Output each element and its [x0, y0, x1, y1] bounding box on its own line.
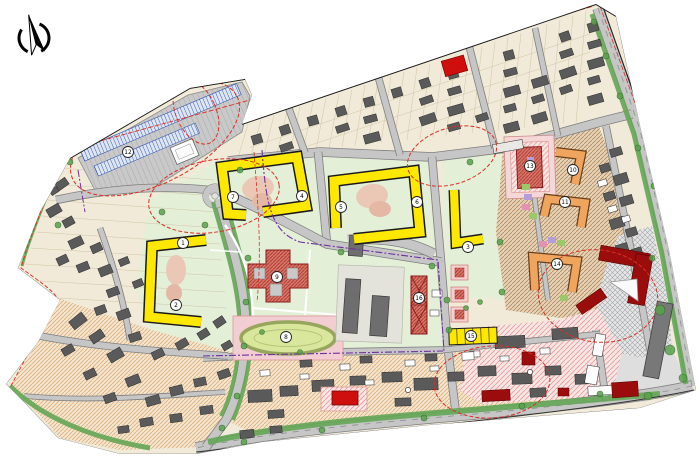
- building-number-marker: 6: [412, 197, 423, 208]
- tree-icon: [219, 425, 225, 431]
- tree-icon: [241, 343, 247, 349]
- building-number-marker: 4: [297, 191, 308, 202]
- existing-building: [340, 364, 350, 370]
- svg-text:5: 5: [339, 205, 343, 211]
- svg-text:6: 6: [415, 200, 419, 206]
- existing-building: [170, 413, 183, 423]
- north-arrow-icon: [19, 13, 49, 55]
- existing-building: [425, 354, 437, 361]
- master-plan-screenshot: 12745612398131011141516: [0, 0, 700, 458]
- tree-icon: [519, 403, 525, 409]
- existing-building: [260, 370, 270, 377]
- tree-icon: [478, 300, 483, 305]
- svg-text:4: 4: [300, 194, 304, 200]
- existing-building: [552, 327, 579, 340]
- tree-icon: [245, 255, 251, 261]
- existing-building: [430, 310, 439, 316]
- tree-icon: [319, 427, 325, 433]
- tree-icon: [338, 249, 344, 255]
- existing-building: [43, 161, 60, 176]
- svg-text:13: 13: [526, 164, 534, 170]
- building-number-marker: 16: [414, 293, 425, 304]
- tree-icon: [497, 239, 503, 245]
- building-number-marker: 11: [560, 197, 571, 208]
- existing-building: [462, 352, 474, 360]
- svg-text:7: 7: [231, 195, 235, 201]
- svg-text:12: 12: [124, 150, 132, 156]
- tree-icon: [467, 159, 473, 165]
- tree-icon: [243, 299, 249, 305]
- existing-building: [430, 366, 439, 371]
- tree-icon: [446, 327, 452, 333]
- existing-building: [248, 389, 273, 402]
- tree-icon: [55, 222, 61, 228]
- existing-building: [545, 366, 561, 376]
- tree-icon: [464, 306, 469, 311]
- tree-icon: [421, 415, 427, 421]
- existing-building: [478, 366, 496, 377]
- existing-building: [540, 348, 550, 354]
- tree-icon: [644, 392, 652, 400]
- existing-building: [448, 372, 464, 382]
- tree-icon: [159, 209, 165, 215]
- tree-icon: [649, 255, 655, 261]
- existing-building: [360, 356, 372, 363]
- building-number-marker: 7: [228, 192, 239, 203]
- utility-plots: [451, 265, 468, 322]
- building-number-marker: 10: [568, 165, 579, 176]
- existing-building: [268, 409, 285, 418]
- tree-icon: [241, 439, 247, 445]
- building-number-marker: 13: [525, 161, 536, 172]
- tree-icon: [591, 19, 597, 25]
- existing-building: [350, 376, 366, 386]
- tree-icon: [665, 345, 675, 355]
- svg-text:10: 10: [569, 168, 577, 174]
- building-number-marker: 12: [123, 147, 134, 158]
- tree-icon: [651, 183, 657, 189]
- svg-text:14: 14: [553, 262, 561, 268]
- tree-icon: [237, 167, 243, 173]
- svg-text:3: 3: [466, 245, 470, 251]
- existing-building: [280, 386, 298, 397]
- tree-icon: [234, 393, 240, 399]
- tree-icon: [499, 289, 505, 295]
- existing-building: [240, 429, 255, 438]
- building-number-marker: 1: [178, 238, 189, 249]
- svg-text:11: 11: [561, 200, 569, 206]
- tree-icon: [655, 305, 665, 315]
- tree-icon: [679, 374, 687, 382]
- existing-building: [495, 335, 526, 349]
- tree-icon: [260, 330, 265, 335]
- tree-icon: [67, 159, 73, 165]
- existing-building: [300, 374, 309, 379]
- building-number-marker: 9: [272, 272, 283, 283]
- existing-building: [382, 372, 402, 383]
- svg-text:1: 1: [181, 241, 185, 247]
- building-number-marker: 5: [336, 202, 347, 213]
- building-number-marker: 2: [171, 300, 182, 311]
- master-plan-map: 12745612398131011141516: [0, 0, 700, 458]
- existing-building: [365, 380, 374, 385]
- tree-icon: [617, 93, 623, 99]
- building-number-marker: 8: [281, 332, 292, 343]
- building-number-marker: 14: [552, 259, 563, 270]
- tree-icon: [635, 145, 641, 151]
- existing-building: [200, 405, 214, 415]
- svg-text:9: 9: [275, 275, 279, 281]
- existing-building: [270, 425, 283, 433]
- tree-icon: [597, 391, 603, 397]
- existing-building: [118, 425, 130, 433]
- svg-text:2: 2: [174, 303, 178, 309]
- tree-icon: [603, 53, 609, 59]
- existing-building: [395, 398, 411, 407]
- existing-building: [500, 356, 509, 361]
- svg-text:8: 8: [284, 335, 288, 341]
- building-number-marker: 3: [463, 242, 474, 253]
- existing-building: [405, 360, 415, 366]
- red-braced-building: [411, 276, 427, 334]
- tree-icon: [444, 297, 450, 303]
- tree-icon: [202, 222, 208, 228]
- building-number-marker: 15: [466, 331, 477, 342]
- existing-building: [300, 360, 312, 368]
- svg-text:15: 15: [467, 334, 475, 340]
- tree-icon: [298, 350, 303, 355]
- tree-icon: [429, 263, 435, 269]
- svg-text:16: 16: [415, 296, 423, 302]
